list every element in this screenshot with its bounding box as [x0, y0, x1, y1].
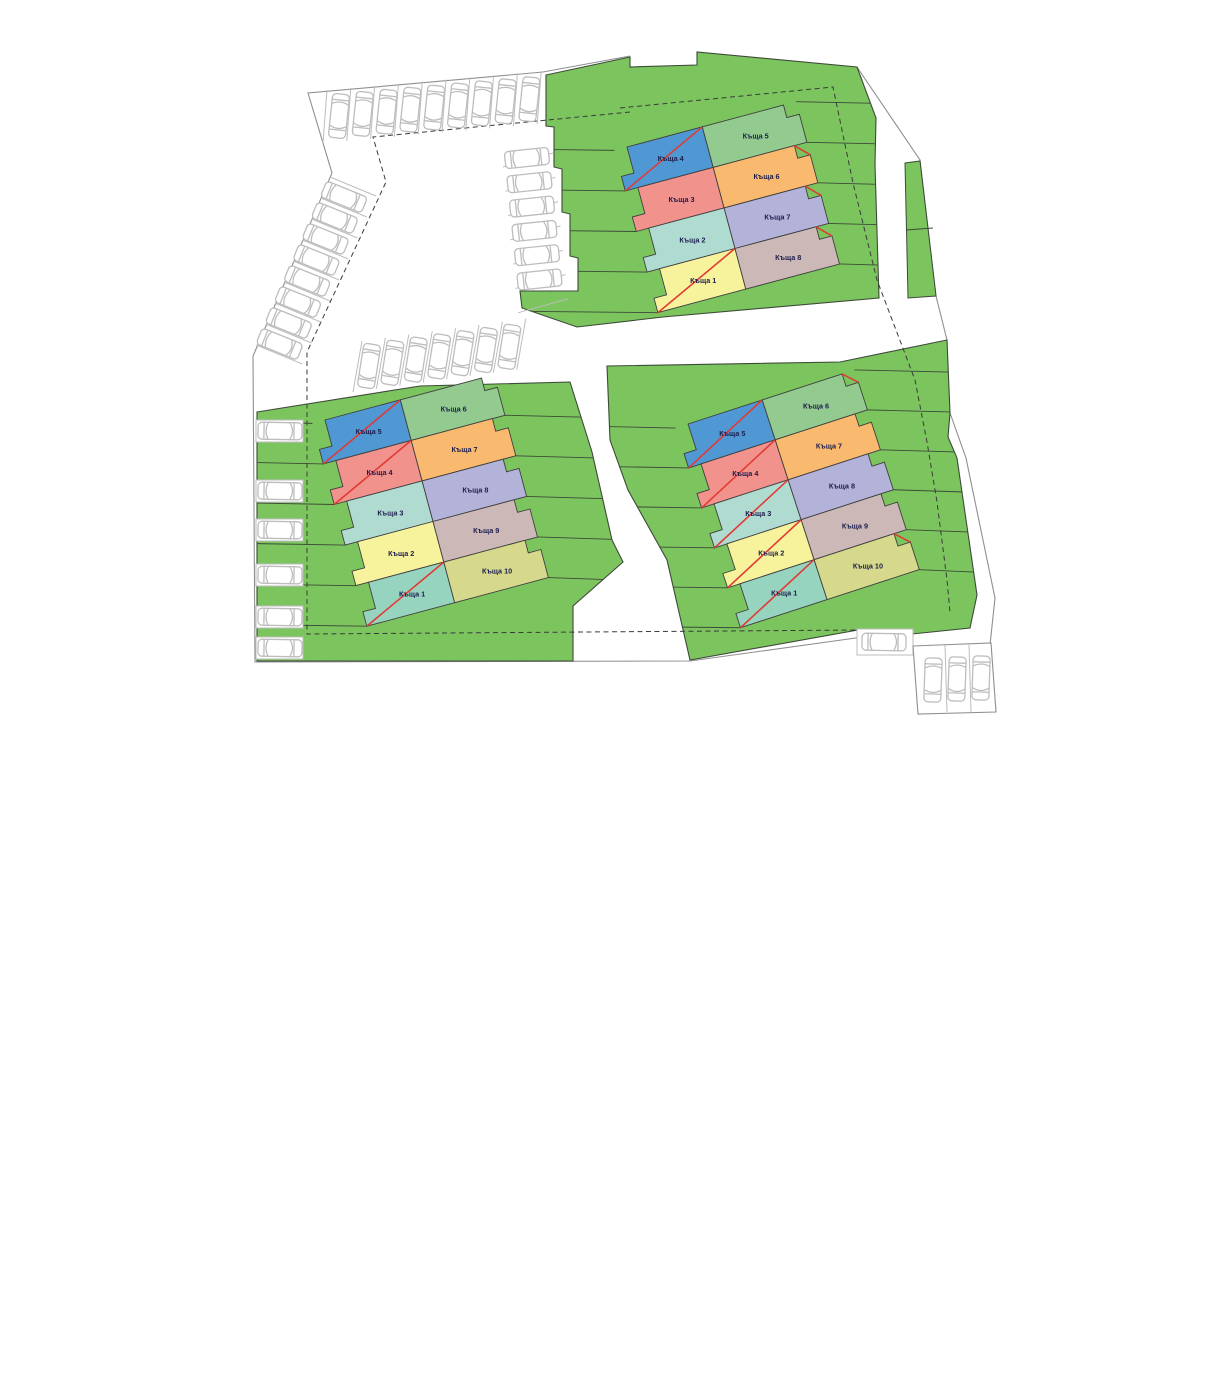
- house-label: Къща 3: [668, 195, 694, 204]
- house-label: Къща 4: [658, 154, 685, 163]
- house-label: Къща 7: [816, 442, 842, 451]
- car-icon: [862, 633, 906, 651]
- car-icon: [924, 658, 943, 703]
- car-icon: [352, 91, 374, 137]
- house-label: Къща 2: [679, 235, 705, 244]
- car-icon: [972, 656, 991, 701]
- car-icon: [258, 422, 302, 440]
- house-label: Къща 6: [803, 402, 829, 411]
- house-label: Къща 7: [451, 445, 477, 454]
- house-label: Къща 5: [719, 429, 745, 438]
- car-icon: [447, 83, 469, 129]
- house-label: Къща 8: [462, 486, 488, 495]
- car-icon: [258, 521, 302, 539]
- house-label: Къща 6: [753, 172, 779, 181]
- car-icon: [519, 76, 541, 122]
- house-label: Къща 9: [842, 522, 868, 531]
- car-icon: [471, 81, 493, 127]
- house-label: Къща 2: [388, 549, 414, 558]
- site-plan: Къща 4Къща 3Къща 2Къща 1Къща 5Къща 6Къща…: [0, 0, 1231, 1395]
- car-icon: [376, 89, 398, 135]
- parking-bay-line: [323, 90, 327, 143]
- house-label: Къща 3: [745, 509, 771, 518]
- car-icon: [504, 147, 550, 169]
- house-label: Къща 1: [771, 589, 797, 598]
- house-label: Къща 7: [764, 213, 790, 222]
- car-icon: [328, 93, 350, 139]
- house-label: Къща 9: [473, 526, 499, 535]
- site-plan-canvas: Къща 4Къща 3Къща 2Къща 1Къща 5Къща 6Къща…: [0, 0, 1231, 1395]
- car-icon: [400, 87, 422, 133]
- car-icon: [495, 79, 517, 125]
- house-label: Къща 10: [482, 567, 512, 576]
- car-icon: [258, 608, 302, 626]
- house-label: Къща 1: [399, 589, 425, 598]
- car-icon: [507, 172, 553, 194]
- house-label: Къща 6: [441, 404, 467, 413]
- car-icon: [258, 639, 302, 657]
- house-label: Къща 5: [356, 427, 382, 436]
- car-icon: [509, 196, 555, 218]
- house-label: Къща 5: [743, 131, 769, 140]
- house-label: Къща 1: [690, 276, 716, 285]
- house-label: Къща 8: [829, 482, 855, 491]
- house-label: Къща 3: [377, 508, 403, 517]
- house-label: Къща 2: [758, 549, 784, 558]
- car-icon: [258, 482, 302, 500]
- car-icon: [517, 269, 563, 291]
- house-label: Къща 10: [853, 561, 883, 570]
- house-label: Къща 8: [775, 253, 801, 262]
- house-label: Къща 4: [366, 468, 393, 477]
- car-icon: [423, 85, 445, 131]
- car-icon: [258, 566, 302, 584]
- house-label: Къща 4: [732, 469, 759, 478]
- car-icon: [512, 220, 558, 242]
- car-icon: [948, 657, 967, 702]
- car-icon: [514, 244, 560, 266]
